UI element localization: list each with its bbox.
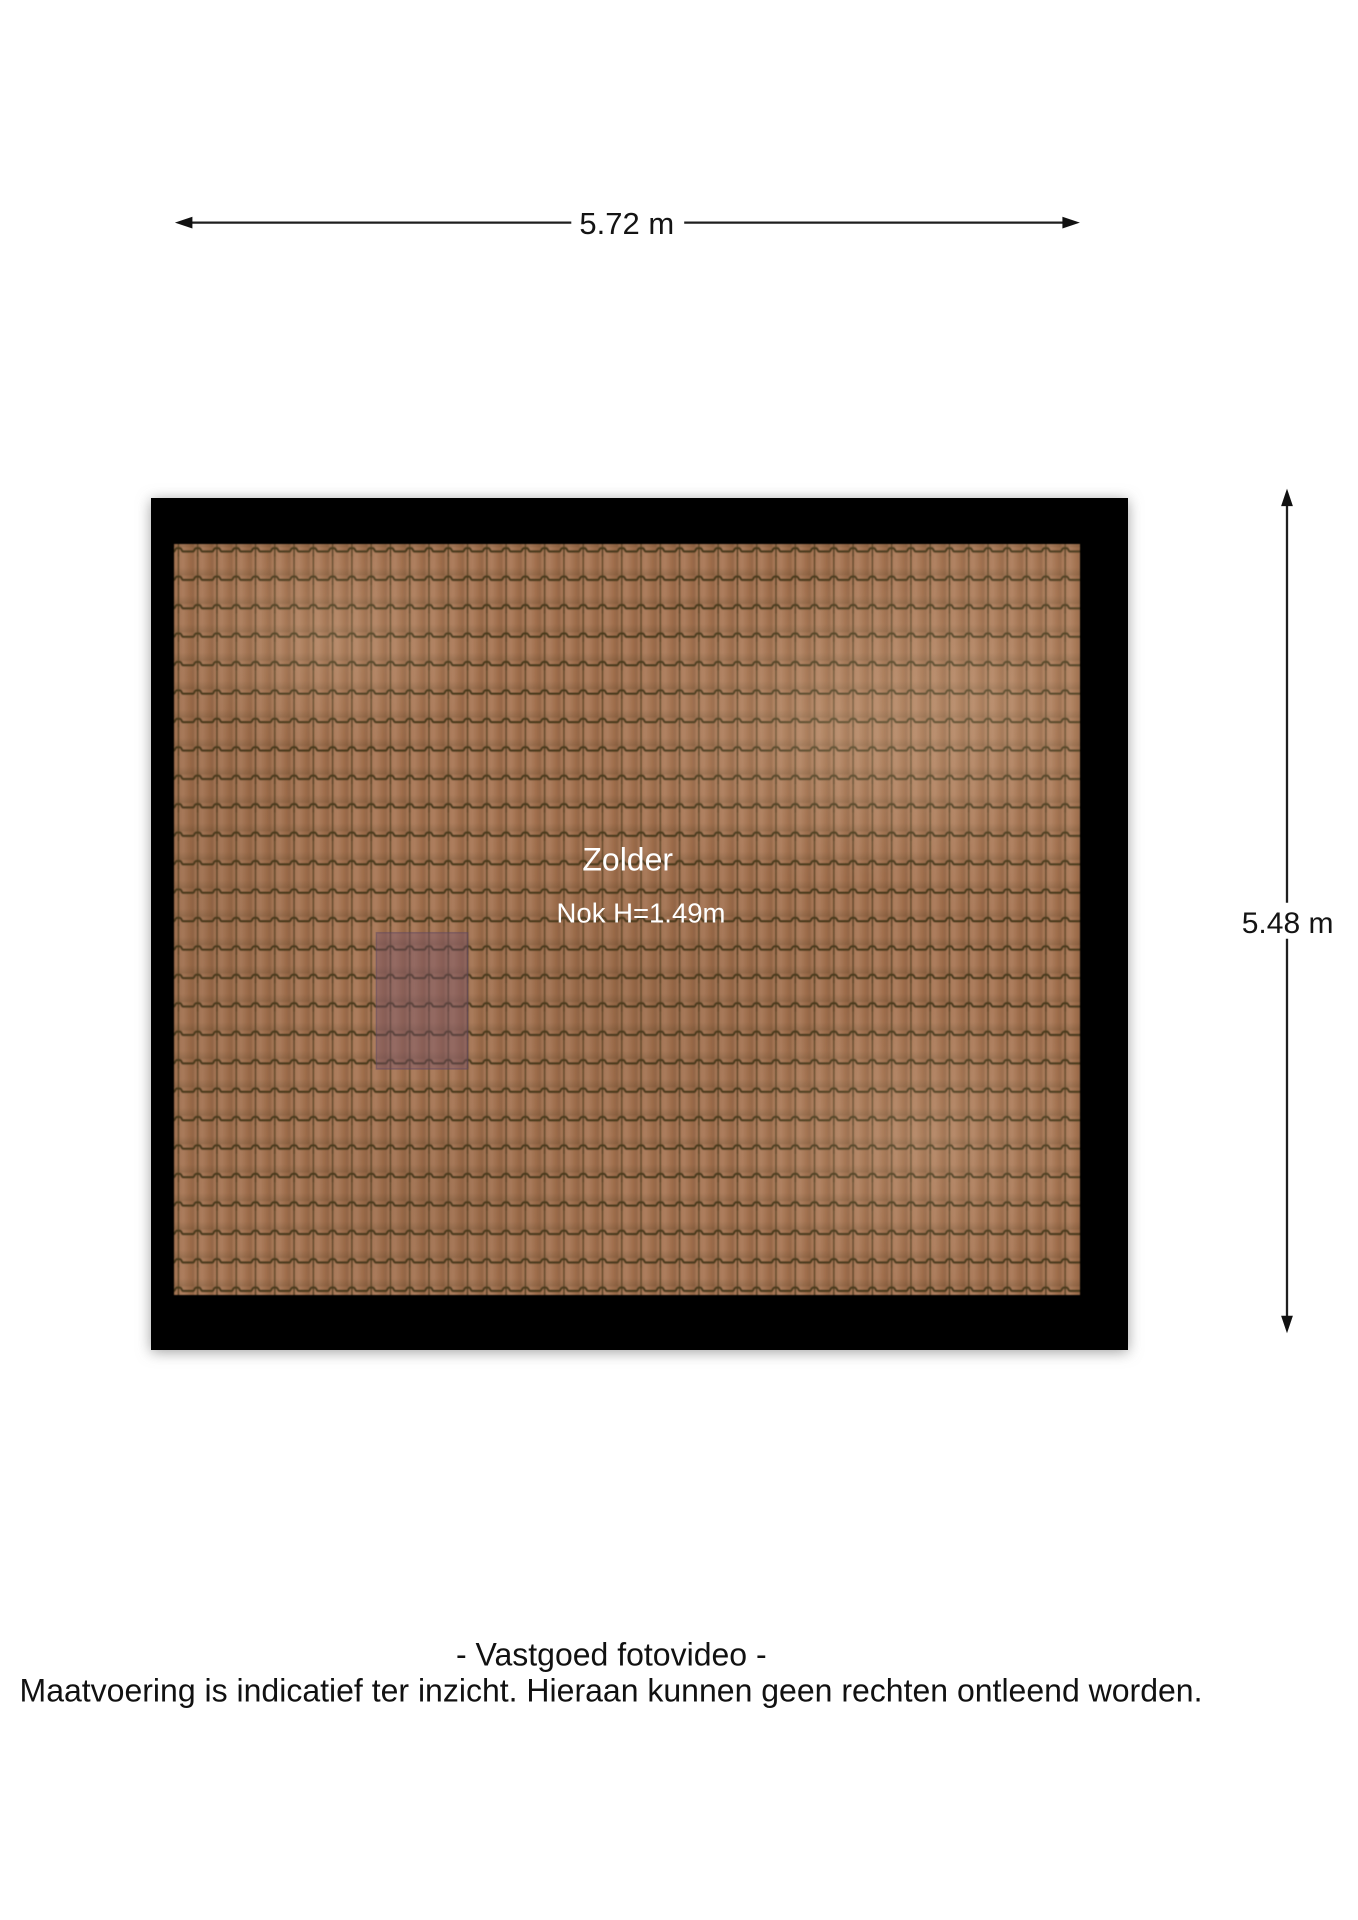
svg-text:Nok H=1.49m: Nok H=1.49m bbox=[557, 897, 726, 928]
svg-text:- Vastgoed fotovideo -: - Vastgoed fotovideo - bbox=[456, 1637, 767, 1673]
svg-text:Zolder: Zolder bbox=[582, 841, 673, 877]
svg-text:5.48 m: 5.48 m bbox=[1242, 907, 1334, 940]
svg-text:Maatvoering is indicatief ter: Maatvoering is indicatief ter inzicht. H… bbox=[20, 1672, 1203, 1708]
svg-text:5.72 m: 5.72 m bbox=[579, 206, 674, 241]
